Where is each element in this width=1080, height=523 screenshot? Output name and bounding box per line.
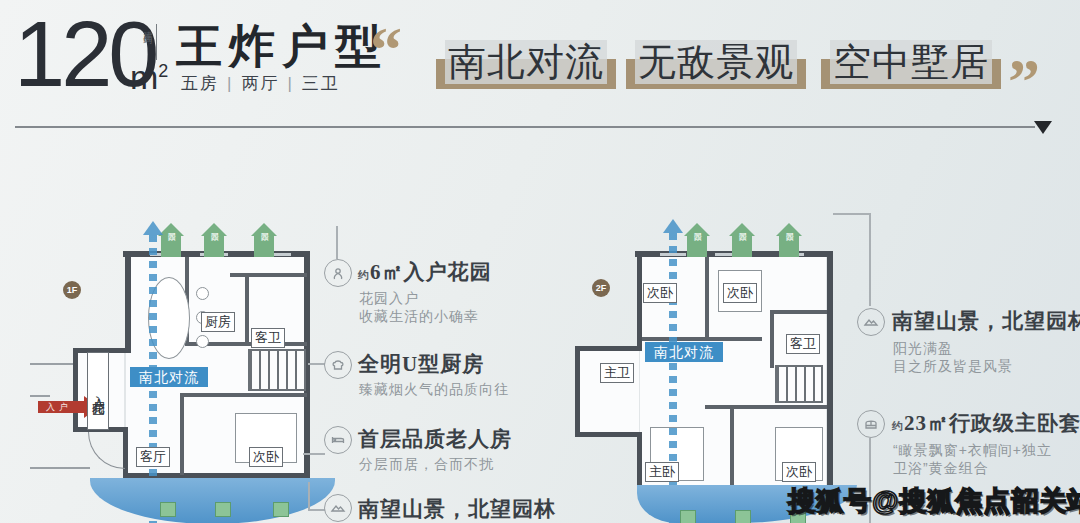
garden-view-label: 园景 (689, 227, 705, 257)
floor-plan-2f: 园景 园景 园景 南北对流 2F 次卧 次卧 客卫 主卫 主卧 次卧 (575, 215, 875, 523)
corridor-line (30, 363, 73, 365)
spec-baths: 三卫 (302, 74, 340, 93)
wall (575, 346, 580, 437)
garden-view-arrow-icon: 园景 (251, 223, 277, 257)
room-label-guest-bath: 客卫 (786, 334, 820, 354)
feature-line: 臻藏烟火气的品质向往 (359, 381, 509, 399)
airflow-arrowhead (663, 219, 683, 233)
room-label-master: 主卧 (645, 462, 679, 482)
slogan-text: 无敌景观 (635, 40, 797, 84)
slogan-phrase: 无敌景观 (635, 38, 797, 90)
room-label-bedroom: 次卧 (723, 283, 757, 303)
room-label-kitchen: 厨房 (201, 312, 235, 332)
feature-title-text: 南望山景，北望园林 (892, 309, 1080, 333)
spec-halls: 两厅 (241, 74, 279, 93)
mountain-icon (324, 494, 352, 522)
stool (196, 335, 209, 348)
slogan-text: 空中墅居 (830, 40, 992, 84)
floor-badge: 2F (592, 279, 610, 297)
wall (73, 348, 78, 432)
garden-view-label: 园景 (781, 227, 797, 257)
airflow-arrowhead (143, 221, 163, 235)
room-label-bedroom: 次卧 (249, 447, 283, 467)
chef-hat-icon (324, 351, 352, 379)
wall (705, 257, 709, 340)
garden-view-arrow-icon: 园景 (201, 223, 227, 257)
feature-title: 南望山景，北望园林 (358, 495, 556, 523)
garden-view-label: 园景 (206, 227, 222, 257)
feature-title: 约6㎡入户花园 (358, 258, 492, 286)
garden-view-arrow-icon: 园景 (684, 223, 710, 257)
floor-badge: 1F (63, 281, 81, 299)
stairs (775, 365, 823, 403)
wall (770, 310, 827, 314)
feature-line: 阳光满盈 (893, 340, 953, 358)
leader-line (308, 363, 325, 365)
corridor-line (30, 467, 90, 469)
room-label-entry-garden: 入户花园 (87, 352, 109, 430)
bed-icon (324, 426, 352, 454)
feature-title-prefix: 约 (892, 420, 904, 432)
stool (196, 287, 209, 300)
wall (230, 273, 307, 277)
area-unit: m2 (130, 58, 168, 97)
floor-plan-1f: 入户 园景 园景 园景 南北对流 1F 厨房 客卫 客厅 次卧 入户花园 (30, 215, 345, 523)
planter (680, 510, 696, 523)
feature-line: 卫浴”黄金组合 (893, 460, 989, 478)
feature-line: “瞰景飘窗+衣帽间+独立 (893, 442, 1052, 460)
leader-line (869, 213, 871, 306)
sohu-watermark: 搜狐号@搜狐焦点韶关站 (788, 483, 1080, 519)
feature-line: 分层而居，合而不扰 (359, 456, 494, 474)
wall (637, 251, 642, 350)
wall (180, 393, 184, 475)
mountain-icon (857, 308, 885, 336)
feature-title-text: 首层品质老人房 (358, 427, 512, 451)
door-arc (88, 432, 125, 469)
bay-window-icon (857, 410, 885, 438)
room-label-bedroom: 次卧 (782, 462, 816, 482)
wall (245, 275, 249, 345)
room-label-master-bath: 主卫 (600, 363, 634, 383)
wall (827, 251, 833, 495)
feature-line: 收藏生活的小确幸 (359, 308, 479, 326)
garden-view-label: 园景 (256, 227, 272, 257)
feature-title: 首层品质老人房 (358, 425, 512, 453)
divider-arrow-icon (1034, 121, 1052, 134)
feature-title-text: 23㎡行政级主卧套房 (904, 411, 1080, 435)
airflow-badge: 南北对流 (645, 342, 723, 362)
spec-separator: | (227, 74, 233, 93)
wall (180, 393, 307, 397)
airflow-badge: 南北对流 (130, 367, 208, 387)
entry-label: 入户 (46, 401, 72, 414)
slogan-phrase: 南北对流 (445, 38, 607, 90)
feature-title: 全明U型厨房 (358, 350, 484, 378)
planter (735, 510, 751, 523)
garden-view-label: 园景 (163, 227, 179, 257)
close-quote-mark: ” (1008, 62, 1040, 102)
feature-line: 目之所及皆是风景 (893, 358, 1013, 376)
room-label-guest-bath: 客卫 (251, 328, 285, 348)
feature-title: 约23㎡行政级主卧套房 (892, 409, 1080, 437)
leader-line (336, 226, 338, 259)
garden-view-arrow-icon: 园景 (776, 223, 802, 257)
slogan-phrase: 空中墅居 (830, 38, 992, 90)
leader-line (303, 453, 325, 455)
wall (770, 310, 774, 368)
water-feature (90, 478, 335, 523)
flower-icon (324, 259, 352, 287)
spec-rooms: 五房 (181, 74, 219, 93)
wall (125, 251, 131, 352)
poster-page: 120 m2 建面约 王炸户型 五房|两厅|三卫 “ 南北对流 无敌景观 空中墅… (0, 0, 1080, 523)
wall (642, 337, 762, 341)
page-title: 王炸户型 (176, 16, 388, 78)
planter (215, 502, 231, 517)
spec-list: 五房|两厅|三卫 (181, 72, 340, 95)
wall (575, 346, 642, 351)
wall (730, 405, 734, 490)
room-label-bedroom: 次卧 (643, 283, 677, 303)
feature-line: 花园入户 (359, 290, 419, 308)
planter (273, 502, 289, 517)
feature-title-text: 全明U型厨房 (358, 352, 484, 376)
leader-line (833, 213, 870, 215)
area-note: 建面约 (141, 24, 157, 60)
feature-title: 南望山景，北望园林 (892, 307, 1080, 335)
area-unit-base: m (130, 58, 158, 96)
spec-separator: | (287, 74, 293, 93)
slogan-text: 南北对流 (445, 40, 607, 84)
planter (160, 502, 176, 517)
garden-view-arrow-icon: 园景 (729, 223, 755, 257)
open-quote-mark: “ (370, 30, 402, 70)
garden-view-label: 园景 (734, 227, 750, 257)
feature-title-text: 6㎡入户花园 (370, 260, 492, 284)
feature-title-prefix: 约 (358, 269, 370, 281)
wall (705, 405, 827, 409)
wall (575, 432, 642, 437)
area-unit-sup: 2 (158, 61, 168, 81)
divider-line (15, 126, 1035, 128)
feature-title-text: 南望山景，北望园林 (358, 497, 556, 521)
stairs (248, 349, 306, 391)
wall (637, 432, 642, 490)
leader-line (308, 509, 325, 511)
leader-line (308, 482, 310, 510)
room-label-living: 客厅 (136, 447, 170, 467)
